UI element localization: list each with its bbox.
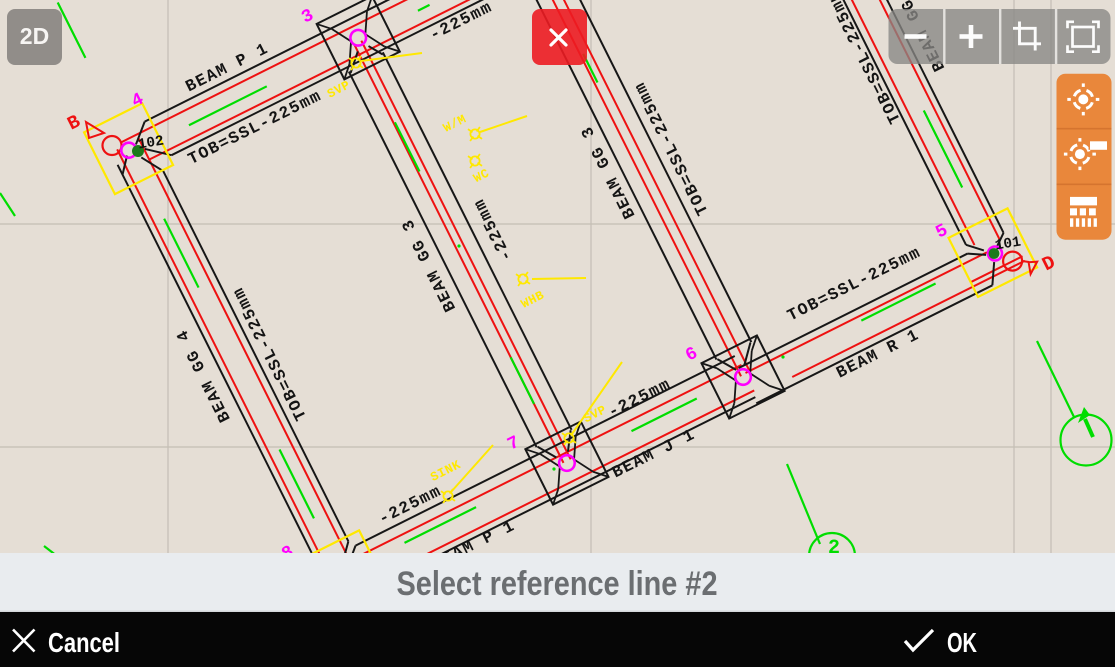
- svg-text:2D: 2D: [20, 23, 49, 49]
- svg-text:Select reference line #2: Select reference line #2: [397, 565, 718, 603]
- svg-text:OK: OK: [947, 627, 977, 658]
- svg-text:Cancel: Cancel: [48, 627, 120, 658]
